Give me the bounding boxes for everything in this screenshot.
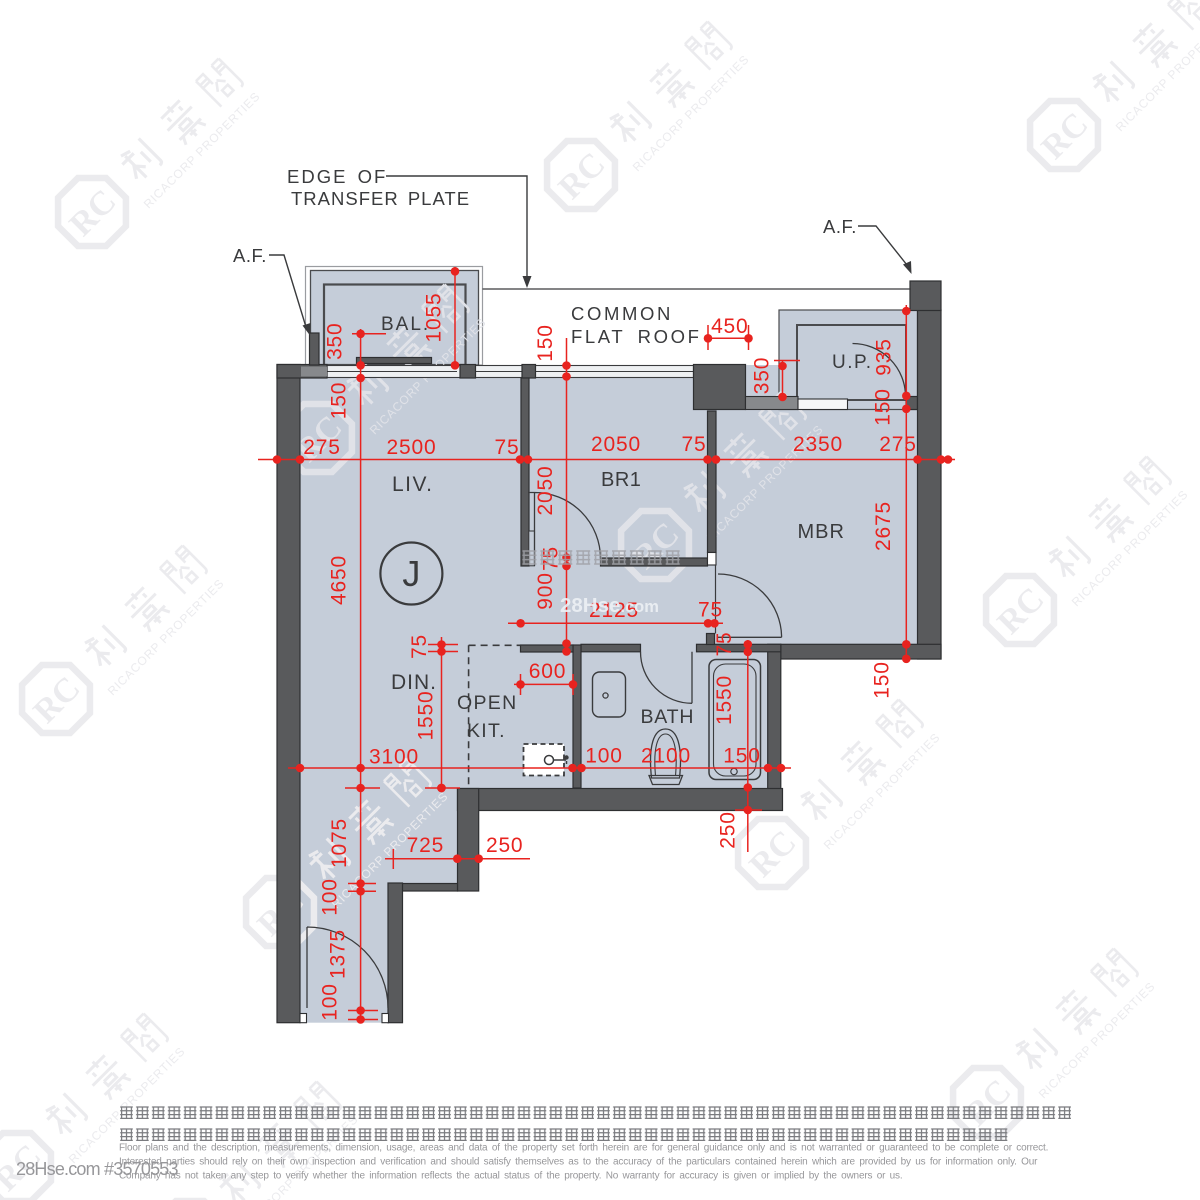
- svg-text:A.F.: A.F.: [233, 245, 267, 266]
- svg-text:Company has not taken any step: Company has not taken any step to verify…: [119, 1171, 902, 1182]
- svg-text:150: 150: [872, 388, 895, 425]
- svg-text:75: 75: [408, 634, 431, 659]
- svg-text:150: 150: [328, 382, 351, 419]
- svg-text:450: 450: [711, 315, 748, 338]
- svg-text:75: 75: [698, 599, 723, 622]
- svg-text:2100: 2100: [641, 745, 691, 768]
- svg-text:LIV.: LIV.: [392, 473, 433, 496]
- svg-text:BATH: BATH: [641, 706, 695, 728]
- svg-text:TRANSFER PLATE: TRANSFER PLATE: [291, 188, 470, 209]
- svg-text:600: 600: [529, 660, 566, 683]
- svg-text:1550: 1550: [713, 675, 736, 725]
- svg-text:275: 275: [303, 436, 340, 459]
- svg-text:2050: 2050: [534, 466, 557, 516]
- svg-text:COMMON: COMMON: [571, 303, 673, 324]
- svg-text:100: 100: [318, 983, 341, 1020]
- svg-text:100: 100: [585, 745, 622, 768]
- svg-text:BAL.: BAL.: [381, 314, 430, 335]
- svg-text:250: 250: [717, 811, 740, 848]
- svg-text:2500: 2500: [387, 436, 437, 459]
- svg-text:KIT.: KIT.: [467, 720, 506, 742]
- svg-text:100: 100: [318, 878, 341, 915]
- svg-text:28Hse.com #3570553: 28Hse.com #3570553: [16, 1159, 179, 1179]
- svg-text:DIN.: DIN.: [391, 671, 437, 694]
- svg-text:350: 350: [751, 357, 774, 394]
- svg-text:2675: 2675: [872, 501, 895, 551]
- svg-text:EDGE OF: EDGE OF: [287, 166, 387, 187]
- svg-text:150: 150: [871, 661, 894, 698]
- svg-text:4650: 4650: [327, 555, 350, 605]
- svg-text:150: 150: [534, 324, 557, 361]
- svg-text:OPEN: OPEN: [457, 692, 517, 714]
- svg-text:150: 150: [723, 745, 760, 768]
- svg-text:28Hse.com: 28Hse.com: [560, 594, 659, 617]
- svg-text:75: 75: [495, 436, 520, 459]
- svg-text:Interested parties should rely: Interested parties should rely on their …: [119, 1157, 1038, 1168]
- svg-text:J: J: [402, 553, 420, 594]
- svg-text:935: 935: [873, 338, 896, 375]
- svg-text:FLAT ROOF: FLAT ROOF: [571, 326, 702, 347]
- svg-text:350: 350: [324, 322, 347, 359]
- svg-text:1550: 1550: [415, 691, 438, 741]
- svg-text:A.F.: A.F.: [823, 216, 857, 237]
- svg-text:75: 75: [713, 632, 736, 657]
- svg-text:900: 900: [534, 572, 557, 609]
- svg-text:275: 275: [879, 433, 916, 456]
- svg-text:3100: 3100: [369, 746, 419, 769]
- svg-text:U.P.: U.P.: [832, 352, 873, 373]
- svg-text:725: 725: [407, 834, 444, 857]
- svg-text:Floor plans and the descriptio: Floor plans and the description, measure…: [119, 1143, 1048, 1154]
- svg-text:1375: 1375: [327, 929, 350, 979]
- svg-text:2050: 2050: [591, 433, 641, 456]
- svg-text:75: 75: [682, 433, 707, 456]
- svg-text:MBR: MBR: [798, 521, 845, 543]
- svg-text:250: 250: [486, 834, 523, 857]
- svg-text:1075: 1075: [328, 818, 351, 868]
- svg-text:BR1: BR1: [601, 469, 641, 491]
- svg-text:2350: 2350: [793, 433, 843, 456]
